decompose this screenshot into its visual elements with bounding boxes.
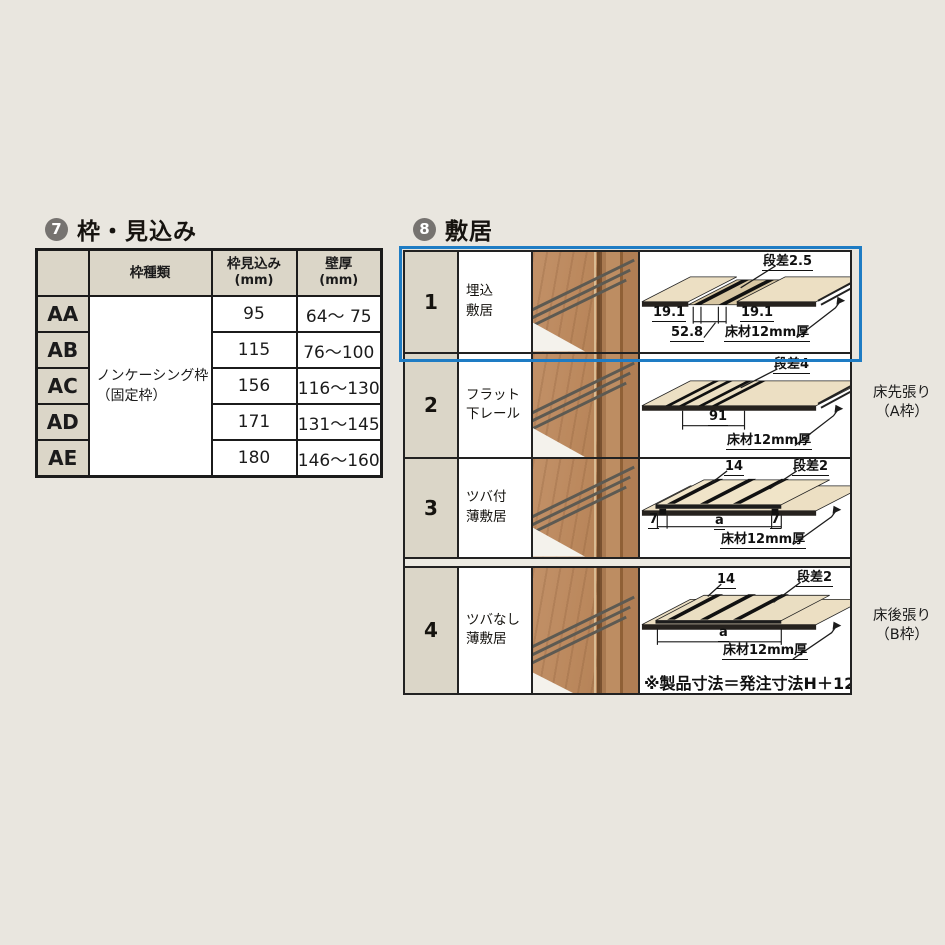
dim-label: 段差2 xyxy=(792,460,829,476)
sill-type-label: フラット 下レール xyxy=(459,354,533,458)
row-number: 3 xyxy=(405,459,459,557)
sill-table: 1 埋込 敷居 xyxy=(403,250,852,695)
sill-label-line1: フラット xyxy=(466,386,531,406)
sill-label-line1: ツバなし xyxy=(466,611,531,631)
col-header-mikomi-text: 枠見込み xyxy=(213,256,296,273)
sill-label-line2: 下レール xyxy=(466,405,531,425)
catalog-page: 7 枠・見込み 枠種類 枠見込み (mm) 壁厚 (mm) AA xyxy=(0,0,945,945)
corner-cell xyxy=(37,250,89,297)
table-row: AA ノンケーシング枠 （固定枠） 95 64～ 75 xyxy=(37,296,382,332)
sill-diagram-4: 14 段差2 a 床材12mm厚 ※製品寸法＝発注寸法H＋12 xyxy=(640,568,850,693)
section7-title-text: 枠・見込み xyxy=(77,212,197,246)
sill-diagram-3: 14 段差2 7 a 7 床材12mm厚 xyxy=(640,459,850,557)
section8-title-text: 敷居 xyxy=(445,212,493,246)
sill-diagram-2: 段差4 91 床材12mm厚 xyxy=(640,354,850,458)
section7-title: 7 枠・見込み xyxy=(45,212,197,246)
sill-label-line1: 埋込 xyxy=(466,282,531,302)
row-number: 1 xyxy=(405,252,459,352)
col-header-frame-type: 枠種類 xyxy=(89,250,212,297)
sill-type-label: 埋込 敷居 xyxy=(459,252,533,352)
sill-row-4: 4 ツバなし 薄敷居 xyxy=(405,568,850,693)
sill-row-1: 1 埋込 敷居 xyxy=(405,252,850,354)
sill-label-line2: 薄敷居 xyxy=(466,508,531,528)
frame-code: AC xyxy=(37,368,89,404)
mikomi-value: 156 xyxy=(212,368,297,404)
sill-row-2: 2 フラット 下レール xyxy=(405,354,850,460)
mikomi-value: 115 xyxy=(212,332,297,368)
wood-frame-photo xyxy=(533,354,638,458)
frame-code: AE xyxy=(37,440,89,477)
dim-label: 19.1 xyxy=(652,306,686,322)
dim-label: 14 xyxy=(724,460,744,476)
section-divider xyxy=(405,559,850,568)
dim-label: 14 xyxy=(716,573,736,589)
dim-label: 段差4 xyxy=(773,358,810,374)
mikomi-value: 95 xyxy=(212,296,297,332)
wall-range: 131～145 xyxy=(297,404,382,440)
dim-label: 52.8 xyxy=(670,326,704,342)
dim-label: 床材12mm厚 xyxy=(724,326,810,342)
floor-first-label: 床先張り （A枠） xyxy=(856,384,945,422)
floor-first-line2: （A枠） xyxy=(856,403,945,422)
wood-frame-photo xyxy=(533,252,638,352)
wood-frame-photo xyxy=(533,568,638,693)
floor-after-line1: 床後張り xyxy=(856,607,945,626)
col-header-wall: 壁厚 (mm) xyxy=(297,250,382,297)
section8-number-badge: 8 xyxy=(413,218,436,241)
mikomi-value: 180 xyxy=(212,440,297,477)
sill-type-label: ツバなし 薄敷居 xyxy=(459,568,533,693)
col-header-wall-text: 壁厚 xyxy=(298,256,381,273)
sill-photo xyxy=(533,459,640,557)
sill-label-line2: 敷居 xyxy=(466,302,531,322)
sill-label-line1: ツバ付 xyxy=(466,488,531,508)
dim-label: 床材12mm厚 xyxy=(726,434,812,450)
dim-label: 床材12mm厚 xyxy=(720,533,806,549)
frame-code: AA xyxy=(37,296,89,332)
col-header-mikomi: 枠見込み (mm) xyxy=(212,250,297,297)
col-header-wall-unit: (mm) xyxy=(298,273,381,289)
col-header-mikomi-unit: (mm) xyxy=(213,273,296,289)
dim-label: a xyxy=(714,514,725,530)
frame-code: AD xyxy=(37,404,89,440)
section7-number-badge: 7 xyxy=(45,218,68,241)
wood-frame-photo xyxy=(533,459,638,557)
row-number: 4 xyxy=(405,568,459,693)
sill-row-3: 3 ツバ付 薄敷居 xyxy=(405,459,850,559)
row-number: 2 xyxy=(405,354,459,458)
sill-diagram-1: 段差2.5 19.1 19.1 52.8 床材12mm厚 xyxy=(640,252,850,352)
wall-range: 116～130 xyxy=(297,368,382,404)
frame-type-line2: （固定枠） xyxy=(97,386,211,406)
frame-type-line1: ノンケーシング枠 xyxy=(97,366,211,386)
floor-after-label: 床後張り （B枠） xyxy=(856,607,945,645)
frame-depth-table: 枠種類 枠見込み (mm) 壁厚 (mm) AA ノンケーシング枠 （固定枠） … xyxy=(35,248,383,478)
sill-photo xyxy=(533,354,640,458)
dim-label: 7 xyxy=(770,513,781,529)
dim-label: 91 xyxy=(708,410,728,426)
dim-label: 段差2.5 xyxy=(762,255,813,271)
wall-range: 76～100 xyxy=(297,332,382,368)
sill-type-label: ツバ付 薄敷居 xyxy=(459,459,533,557)
mikomi-value: 171 xyxy=(212,404,297,440)
frame-code: AB xyxy=(37,332,89,368)
sill-label-line2: 薄敷居 xyxy=(466,630,531,650)
floor-after-line2: （B枠） xyxy=(856,626,945,645)
frame-type-cell: ノンケーシング枠 （固定枠） xyxy=(89,296,212,477)
section8-title: 8 敷居 xyxy=(413,212,493,246)
sill-photo xyxy=(533,252,640,352)
dim-label: 7 xyxy=(648,513,659,529)
product-dimension-note: ※製品寸法＝発注寸法H＋12 xyxy=(644,670,850,693)
dim-label: 段差2 xyxy=(796,571,833,587)
dim-label: a xyxy=(718,626,729,642)
dim-label: 19.1 xyxy=(740,306,774,322)
wall-range: 64～ 75 xyxy=(297,296,382,332)
floor-first-line1: 床先張り xyxy=(856,384,945,403)
dim-label: 床材12mm厚 xyxy=(722,644,808,660)
wall-range: 146～160 xyxy=(297,440,382,477)
sill-photo xyxy=(533,568,640,693)
